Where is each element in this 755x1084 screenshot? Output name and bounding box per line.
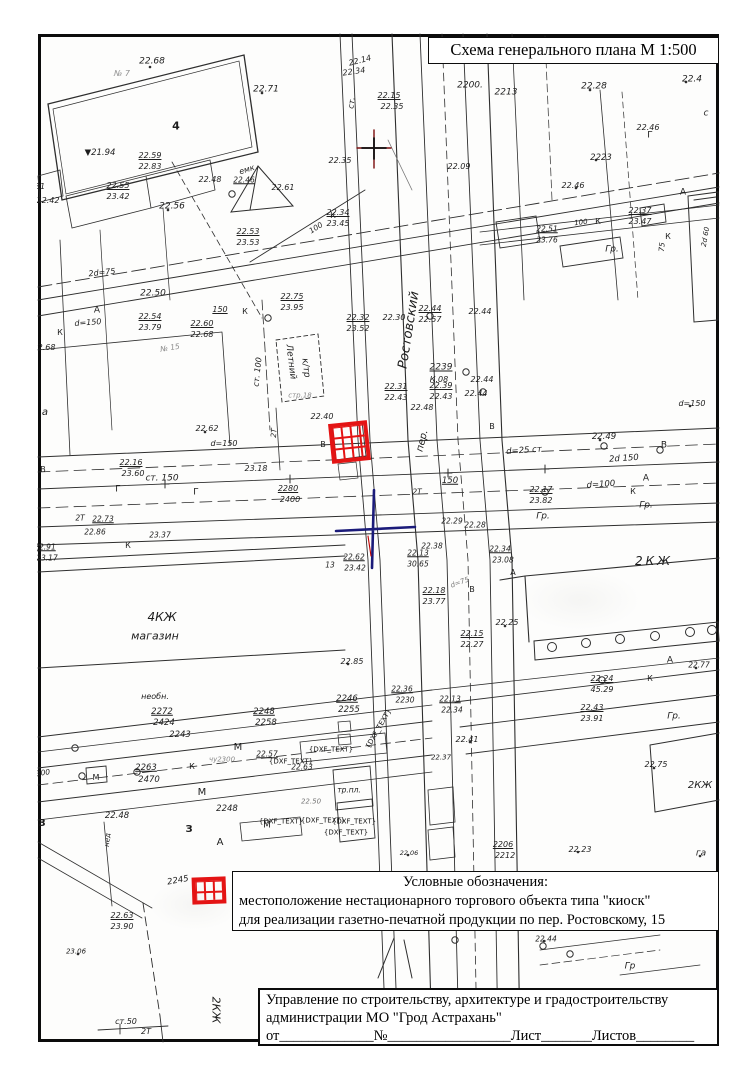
map-label: 22.23 <box>569 846 592 854</box>
map-label: 23.42 <box>344 564 365 572</box>
map-label: 2239 <box>430 364 453 373</box>
map-label: 22.62 <box>196 425 219 433</box>
map-label: 22.43 <box>581 704 604 712</box>
map-label: 2Т <box>75 514 84 522</box>
map-label: Летний <box>283 344 296 380</box>
plan-title: Схема генерального плана М 1:500 <box>450 40 696 59</box>
map-label: 22.32 <box>347 314 370 322</box>
map-label: 22.62 <box>343 553 364 561</box>
legend-kiosk-symbol <box>192 876 227 904</box>
map-label: 23.90 <box>111 923 134 931</box>
map-label: З <box>185 825 192 835</box>
map-label: {DXF_TEXT} <box>324 830 368 837</box>
map-label: 100 <box>574 219 588 227</box>
map-label: 22.71 <box>253 86 279 95</box>
map-label: 2263 <box>135 764 157 773</box>
map-label: 150 <box>212 306 227 314</box>
title-box: Схема генерального плана М 1:500 <box>428 37 719 64</box>
map-label: 22.54 <box>139 313 162 321</box>
map-label: В <box>661 442 667 451</box>
map-label: 23.76 <box>536 236 557 244</box>
map-label: 22.35 <box>329 157 352 165</box>
map-label: {DXF_TEXT} <box>309 747 353 754</box>
map-label: Гр. <box>667 713 681 722</box>
map-label: В <box>469 586 475 594</box>
map-label: М <box>234 743 243 753</box>
map-label: А <box>667 657 673 666</box>
map-label: 22.41 <box>456 736 479 744</box>
map-label: тр.пл. <box>337 786 361 794</box>
kiosk-location-symbol <box>328 420 371 464</box>
legend-box: Условные обозначения: местоположение нес… <box>232 871 719 931</box>
map-label: 22.34 <box>327 209 350 217</box>
map-label: 100 <box>308 221 324 235</box>
map-label: стр.18 <box>288 393 312 400</box>
map-label: 22.28 <box>581 83 607 92</box>
map-label: d=150 <box>678 400 705 408</box>
map-label: 22.16 <box>120 459 143 467</box>
map-label: 2КЖ <box>635 555 673 567</box>
map-label: 2255 <box>338 706 360 715</box>
map-label: 22.48 <box>411 404 434 412</box>
map-label: 22.34 <box>489 545 510 553</box>
map-label: 2258 <box>255 719 277 728</box>
map-label: В <box>320 441 326 449</box>
map-label: 22.34 <box>342 66 366 77</box>
map-label: d=25 ст <box>506 446 542 457</box>
map-label: 2КЖ <box>211 997 222 1024</box>
map-label: 23.79 <box>139 324 162 332</box>
map-label: 22.44 <box>465 390 488 398</box>
map-label: 22.42 <box>37 197 60 205</box>
map-label: 2230 <box>395 696 414 704</box>
map-label: {DXF_TEXT} <box>332 819 376 826</box>
map-label: ст. <box>347 97 356 109</box>
map-label: 22.73 <box>92 515 113 523</box>
map-label: А <box>680 189 686 198</box>
map-label: 23.37 <box>149 531 170 539</box>
map-label: 2248 <box>253 708 275 717</box>
map-label: А <box>643 475 649 484</box>
map-label: 22.59 <box>139 152 162 160</box>
map-label: 2243 <box>169 731 191 740</box>
map-label: 22.44 <box>469 308 492 316</box>
map-label: 2280 <box>278 485 298 493</box>
map-label: 22.39 <box>430 382 453 390</box>
map-label: 22.25 <box>496 619 519 627</box>
map-label: {DXF_TEXT} <box>259 819 303 826</box>
map-label: Гр. <box>639 502 653 511</box>
map-label: нед <box>104 833 112 847</box>
map-label: К <box>242 308 248 316</box>
map-label: 22.09 <box>448 163 471 171</box>
map-label: d=100 <box>586 480 615 490</box>
map-label: 2d=75 <box>88 268 116 279</box>
map-label: 22.31 <box>385 383 408 391</box>
map-label: 22.56 <box>159 203 185 212</box>
map-label: ▼21.94 <box>85 149 116 158</box>
map-label: 22.44 <box>419 305 442 313</box>
map-label: 22.57 <box>419 316 442 324</box>
map-label: 22.24 <box>591 675 614 683</box>
map-label: необн. <box>141 693 169 701</box>
stamp-line-3: от_____________№_________________Лист___… <box>266 1027 711 1045</box>
stamp-line-1: Управление по строительству, архитектуре… <box>266 991 711 1009</box>
map-label: 22.18 <box>423 587 446 595</box>
map-label: 22.27 <box>461 641 484 649</box>
scan-smudge <box>520 570 640 630</box>
map-label: В <box>489 423 495 431</box>
map-label: 22.61 <box>272 184 295 192</box>
map-label: 22.29 <box>441 517 462 525</box>
map-label: 22.60 <box>191 320 214 328</box>
map-label: 2246 <box>336 695 358 704</box>
map-label: пер. <box>415 429 430 453</box>
map-label: 22.49 <box>592 433 616 442</box>
map-label: 2d 60 <box>701 227 711 248</box>
map-label: 22.43 <box>385 394 408 402</box>
map-label: 22.17 <box>530 486 553 494</box>
map-label: га <box>696 850 706 859</box>
stamp-box: Управление по строительству, архитектуре… <box>258 988 719 1046</box>
map-label: К <box>595 218 601 226</box>
map-label: Г <box>193 489 199 498</box>
map-label: 23.42 <box>107 193 130 201</box>
map-label: 2470 <box>138 776 160 785</box>
map-label: 22.86 <box>84 528 105 536</box>
map-label: 22.13 <box>407 549 428 557</box>
map-label: 22.48 <box>105 812 129 821</box>
map-label: 23.08 <box>492 556 513 564</box>
map-label: 4КЖ <box>147 611 176 623</box>
map-label: 22.63 <box>111 912 134 920</box>
map-label: 45.29 <box>591 686 614 694</box>
legend-line-2: для реализации газетно-печатной продукци… <box>239 911 712 930</box>
map-label: 22.40 <box>311 413 334 421</box>
map-label: 23.82 <box>530 497 553 505</box>
map-label: 2КЖ <box>688 781 712 791</box>
map-label: 22.13 <box>439 695 460 703</box>
map-label: 22.46 <box>562 182 585 190</box>
map-label: А <box>217 838 224 848</box>
map-label: 2248 <box>216 805 238 814</box>
map-label: 30.65 <box>407 560 428 568</box>
map-label: 13 <box>325 561 335 569</box>
map-label: ст. 100 <box>252 357 263 387</box>
map-label: № 15 <box>160 343 181 354</box>
map-label: К <box>647 675 653 683</box>
map-label: 2Т <box>141 1028 151 1036</box>
map-label: 22.91 <box>34 543 55 551</box>
map-label: d=75 <box>450 576 470 589</box>
map-label: 22.53 <box>237 228 260 236</box>
map-label: Г <box>647 132 653 141</box>
map-label: М <box>93 774 100 782</box>
map-label: Гр. <box>605 246 619 255</box>
map-label: В <box>40 466 46 474</box>
map-label: d=150 <box>210 440 237 448</box>
map-label: 22.77 <box>688 661 709 669</box>
map-label: 22.43 <box>430 393 453 401</box>
map-label: d=150 <box>74 318 102 328</box>
map-label: 23.18 <box>245 465 268 473</box>
map-label: 2223 <box>590 154 612 163</box>
map-label: 23.95 <box>281 304 304 312</box>
map-label: 22.36 <box>391 685 412 693</box>
map-label: 22.85 <box>341 658 364 666</box>
map-label: 22.48 <box>199 176 222 184</box>
map-label: 22.68 <box>139 58 165 67</box>
map-label: магазин <box>131 631 179 642</box>
map-label: 23.60 <box>122 470 145 478</box>
map-label: 2Т <box>412 488 421 496</box>
map-label: К <box>189 763 195 771</box>
map-label: 2212 <box>495 852 515 860</box>
map-label: 22.06 <box>400 850 419 857</box>
map-label: 23.45 <box>327 220 350 228</box>
stamp-line-2: администрации МО "Грод Астрахань" <box>266 1009 711 1027</box>
map-label: 150 <box>442 477 458 486</box>
map-label: К <box>665 233 671 241</box>
map-label: Гр. <box>536 513 550 522</box>
map-label: 4 <box>172 121 180 132</box>
map-label: 23.53 <box>237 239 260 247</box>
map-label: 22.51 <box>536 225 557 233</box>
map-label: к/тр <box>299 358 310 378</box>
map-label: М <box>198 788 207 798</box>
map-label: с <box>704 110 709 119</box>
map-label: 2272 <box>151 708 173 717</box>
map-label: чу2300 <box>209 757 235 764</box>
map-label: 22.4 <box>682 76 702 85</box>
map-label: 22.37 <box>629 207 652 215</box>
map-label: 22.44 <box>471 376 494 384</box>
map-label: 22.15 <box>378 92 401 100</box>
map-label: {DXF_TEXT} <box>365 708 393 750</box>
map-label: 2400 <box>280 496 300 504</box>
map-label: 22.28 <box>464 521 485 529</box>
map-label: ст. 150 <box>145 475 178 484</box>
map-label: 22.75 <box>645 761 668 769</box>
map-label: К <box>630 488 636 496</box>
map-label: 22.50 <box>140 290 166 299</box>
map-label: 23.77 <box>423 598 446 606</box>
map-label: 2206 <box>493 841 513 849</box>
map-label: К <box>57 329 63 337</box>
map-label: 23.06 <box>66 949 86 956</box>
scanned-plan-page: { "title_box": { "text": "Схема генераль… <box>0 0 755 1084</box>
map-label: З <box>38 819 45 829</box>
map-label: 2200. <box>457 82 483 91</box>
map-label: 2424 <box>153 719 175 728</box>
map-label: ст.50 <box>115 1018 137 1026</box>
map-label: 22.44 <box>535 935 556 943</box>
map-label: 22.35 <box>381 103 404 111</box>
map-label: 22.68 <box>191 331 214 339</box>
map-label: 75 <box>658 242 666 252</box>
map-label: {DXF_TEXT} <box>269 759 313 766</box>
map-label: а <box>42 408 48 418</box>
legend-heading: Условные обозначения: <box>239 873 712 892</box>
legend-line-1: местоположение нестационарного торгового… <box>239 892 712 911</box>
map-label: 22.15 <box>461 630 484 638</box>
map-label: 22.75 <box>281 293 304 301</box>
map-label: 2d 150 <box>609 454 639 465</box>
map-label: 300 <box>35 768 50 777</box>
map-label: № 7 <box>114 70 130 78</box>
map-label: Гр <box>625 963 636 972</box>
map-label: 22.50 <box>301 799 321 806</box>
map-label: 2213 <box>495 89 518 98</box>
map-label: 22.83 <box>139 163 162 171</box>
map-label: 22.37 <box>431 755 451 762</box>
map-label: 23.52 <box>347 325 370 333</box>
map-label: Г <box>115 486 121 495</box>
map-label: А <box>510 569 515 577</box>
map-label: А <box>94 307 100 316</box>
map-label: 22.34 <box>441 706 462 714</box>
map-label: 23.17 <box>36 554 57 562</box>
map-label: 23.47 <box>629 218 652 226</box>
map-label: К <box>125 542 131 550</box>
map-label: 23.91 <box>581 715 604 723</box>
map-label: 22.55 <box>107 182 130 190</box>
map-label: Ростовский <box>396 290 421 369</box>
map-label: 2Т <box>270 428 278 438</box>
map-label: 22.46 <box>233 176 254 184</box>
